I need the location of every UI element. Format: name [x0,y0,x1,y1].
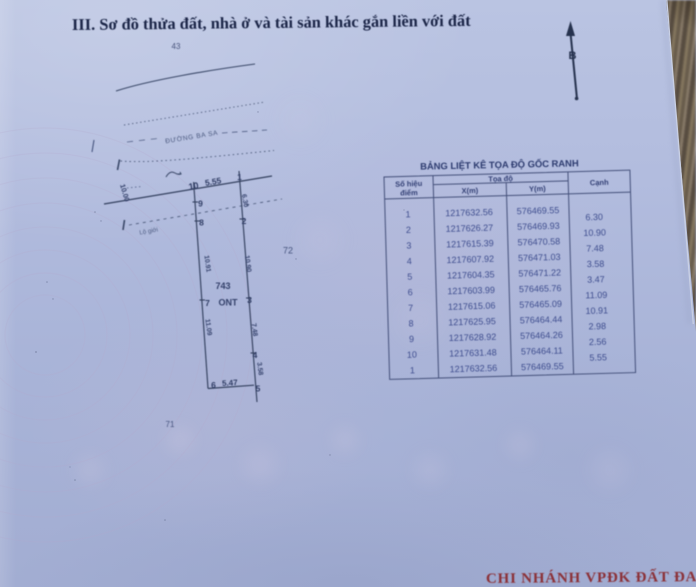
svg-text:5.47: 5.47 [222,378,239,388]
svg-text:576470.58: 576470.58 [517,236,560,247]
svg-text:2.98: 2.98 [588,321,606,331]
svg-text:1217615.06: 1217615.06 [448,301,496,312]
svg-text:10.90: 10.90 [243,255,252,273]
svg-text:ONT: ONT [219,298,239,308]
svg-text:1217615.39: 1217615.39 [446,238,494,249]
svg-text:Số hiệu: Số hiệu [395,179,423,189]
svg-text:576465.09: 576465.09 [519,299,562,310]
svg-text:3.47: 3.47 [587,274,605,284]
svg-text:7: 7 [408,303,413,313]
svg-text:3.58: 3.58 [255,362,264,376]
svg-text:10: 10 [188,180,200,192]
svg-text:Tọa độ: Tọa độ [488,174,513,184]
svg-text:576464.11: 576464.11 [521,345,563,356]
svg-text:1: 1 [405,209,410,219]
svg-text:576464.26: 576464.26 [520,330,563,341]
svg-text:B: B [569,50,577,62]
svg-text:2.56: 2.56 [589,337,607,347]
svg-text:1217632.56: 1217632.56 [445,207,493,218]
svg-text:4: 4 [253,350,258,360]
svg-text:1217625.95: 1217625.95 [448,316,496,327]
svg-text:9: 9 [409,334,414,344]
svg-text:1: 1 [410,365,415,375]
svg-text:43: 43 [172,42,181,51]
svg-text:5.55: 5.55 [204,175,222,188]
svg-text:1217603.99: 1217603.99 [447,285,495,296]
svg-text:1217628.92: 1217628.92 [449,332,497,343]
svg-text:1217604.35: 1217604.35 [447,269,495,280]
svg-text:10: 10 [407,350,417,360]
svg-text:11.09: 11.09 [203,319,212,337]
svg-text:576469.55: 576469.55 [517,205,560,216]
svg-text:CHI NHÁNH VPĐK ĐẤT ĐAI: CHI NHÁNH VPĐK ĐẤT ĐAI [486,568,696,587]
svg-text:576471.03: 576471.03 [518,252,561,263]
svg-text:576469.93: 576469.93 [517,221,560,232]
svg-text:10.00: 10.00 [118,183,132,203]
svg-text:Y(m): Y(m) [529,184,546,193]
svg-text:3.58: 3.58 [587,259,605,269]
svg-text:72: 72 [283,246,293,256]
svg-text:X(m): X(m) [461,186,478,195]
svg-text:1217632.56: 1217632.56 [449,363,497,374]
svg-text:5: 5 [407,272,412,282]
svg-text:III. Sơ đồ thửa đất, nhà ở và: III. Sơ đồ thửa đất, nhà ở và tài sản kh… [72,11,471,34]
svg-text:743: 743 [215,281,230,291]
svg-text:Cạnh: Cạnh [590,178,609,188]
svg-text:1217631.48: 1217631.48 [449,347,497,358]
svg-text:2: 2 [406,225,411,235]
svg-text:6: 6 [408,287,413,297]
svg-text:10.91: 10.91 [585,305,608,316]
svg-text:7: 7 [205,298,210,308]
svg-text:2: 2 [242,216,247,226]
svg-text:8: 8 [408,318,413,328]
svg-text:576465.76: 576465.76 [519,283,562,294]
svg-text:4: 4 [407,256,412,266]
svg-text:9: 9 [198,199,203,209]
svg-text:điểm: điểm [400,188,418,197]
svg-text:8: 8 [199,218,204,228]
svg-text:10.91: 10.91 [202,255,211,273]
svg-text:576469.55: 576469.55 [521,361,564,372]
svg-text:BẢNG LIỆT KÊ TỌA ĐỘ GỐC RANH: BẢNG LIỆT KÊ TỌA ĐỘ GỐC RANH [420,157,579,171]
svg-text:10.90: 10.90 [583,227,606,238]
svg-text:5: 5 [256,384,261,394]
svg-text:7.48: 7.48 [586,243,604,253]
svg-text:7.48: 7.48 [250,323,259,337]
svg-text:1217607.92: 1217607.92 [446,254,494,265]
svg-text:6: 6 [211,380,216,390]
svg-text:576471.22: 576471.22 [518,267,561,278]
svg-text:11.09: 11.09 [585,290,607,301]
svg-text:Lộ giới: Lộ giới [139,226,159,236]
svg-text:1217626.27: 1217626.27 [446,223,494,234]
svg-text:576464.44: 576464.44 [520,314,563,325]
svg-text:1: 1 [237,172,242,182]
svg-text:6.30: 6.30 [585,212,603,222]
svg-text:5.55: 5.55 [589,352,607,362]
svg-text:3: 3 [406,240,411,250]
svg-text:3: 3 [247,295,252,305]
svg-text:ĐƯỜNG BA SA: ĐƯỜNG BA SA [164,128,218,146]
svg-text:71: 71 [166,420,175,429]
